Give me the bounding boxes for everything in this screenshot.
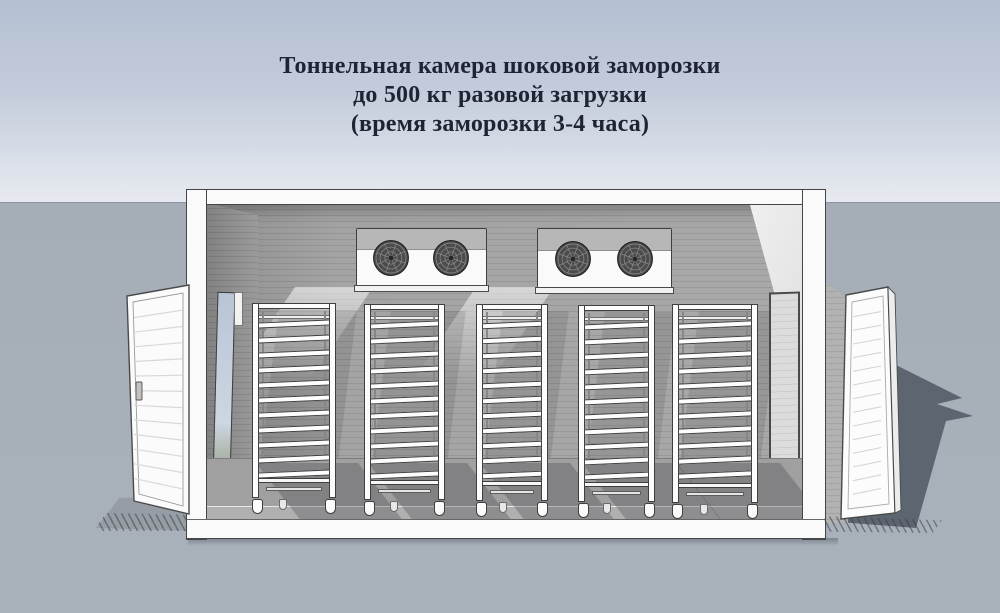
rack-bottom-bar (482, 481, 542, 486)
rack-side-post (751, 304, 758, 503)
caster-wheel-back (603, 503, 611, 514)
tray-shelf (482, 441, 542, 450)
tray-shelf (370, 335, 439, 344)
frame-right-column (802, 189, 826, 540)
rack-bottom-bar (584, 482, 649, 487)
rack-top-back-bar (258, 315, 330, 319)
rack-top-bar (476, 304, 548, 310)
tray-shelf (482, 426, 542, 435)
tray-shelf (678, 455, 752, 464)
tray-shelf (678, 425, 752, 434)
tray-shelf (584, 457, 649, 466)
caster-wheel (644, 503, 655, 518)
frame-top-beam (186, 189, 826, 205)
caster-wheel (537, 502, 548, 517)
tray-shelf (258, 364, 330, 373)
rack-trolley (364, 304, 445, 516)
rack-top-back-bar (678, 316, 752, 320)
rack-axle-bar (592, 491, 641, 495)
tray-shelf (482, 456, 542, 465)
rack-bottom-bar (370, 480, 439, 485)
rack-bottom-bar (258, 478, 330, 483)
rack-trolley (578, 305, 655, 518)
rack-axle-bar (490, 490, 534, 494)
tray-shelf (370, 410, 439, 419)
freezing-chamber-illustration: Тоннельная камера шоковой заморозки до 5… (0, 0, 1000, 613)
tray-shelf (482, 321, 542, 330)
tray-shelf (584, 352, 649, 361)
right-door-graphic (838, 283, 904, 525)
tray-shelf (678, 350, 752, 359)
tray-shelf (584, 427, 649, 436)
tray-shelf (370, 380, 439, 389)
caster-wheel (325, 499, 336, 514)
tray-shelf (584, 322, 649, 331)
tray-shelf (584, 382, 649, 391)
tray-shelf (678, 470, 752, 479)
chamber-base-shadow (188, 538, 838, 546)
tray-shelf (482, 336, 542, 345)
tray-shelf (678, 320, 752, 329)
rack-top-back-bar (370, 316, 439, 320)
rack-side-post (438, 304, 445, 500)
tray-shelf (482, 381, 542, 390)
rack-top-back-bar (482, 316, 542, 320)
caster-wheel (672, 504, 683, 519)
caster-wheel-back (700, 504, 708, 515)
rack-trolley (476, 304, 548, 517)
tray-shelf (482, 411, 542, 420)
tray-shelf (370, 365, 439, 374)
rack-axle-bar (266, 487, 322, 491)
tray-shelf (482, 396, 542, 405)
tray-shelf (678, 395, 752, 404)
caster-wheel (476, 502, 487, 517)
tray-shelf (584, 472, 649, 481)
rack-trolley (672, 304, 758, 519)
tray-shelf (482, 471, 542, 480)
caster-wheel-back (390, 501, 398, 512)
caster-wheel (364, 501, 375, 516)
tray-shelf (370, 425, 439, 434)
tray-shelf (678, 440, 752, 449)
tray-shelf (584, 442, 649, 451)
tray-shelf (370, 350, 439, 359)
tray-shelf (258, 424, 330, 433)
rack-top-bar (578, 305, 655, 311)
tray-shelf (370, 440, 439, 449)
caster-wheel-back (499, 502, 507, 513)
right-door-panel (838, 283, 904, 525)
rack-top-bar (672, 304, 758, 310)
caster-wheel-back (279, 499, 287, 510)
tray-shelf (370, 320, 439, 329)
tray-shelf (482, 366, 542, 375)
tray-shelf (258, 454, 330, 463)
tray-shelf (258, 349, 330, 358)
tray-shelf (678, 380, 752, 389)
tray-shelf (678, 410, 752, 419)
rack-side-post (329, 303, 336, 498)
rack-bottom-bar (678, 483, 752, 488)
tray-shelf (258, 334, 330, 343)
tray-shelf (258, 379, 330, 388)
rack-axle-bar (686, 492, 744, 496)
tray-shelf (258, 394, 330, 403)
tray-shelf (678, 335, 752, 344)
frame-bottom-beam (186, 519, 826, 539)
tray-shelf (584, 412, 649, 421)
rack-side-post (648, 305, 655, 502)
tray-shelf (678, 365, 752, 374)
tray-shelf (584, 397, 649, 406)
rack-trolley (252, 303, 336, 514)
tray-shelf (370, 395, 439, 404)
rack-top-bar (364, 304, 445, 310)
door-handle-icon (136, 382, 142, 400)
caster-wheel (747, 504, 758, 519)
tray-shelf (370, 455, 439, 464)
caster-wheel (252, 499, 263, 514)
tray-shelf (258, 439, 330, 448)
left-door (124, 282, 192, 520)
rack-side-post (541, 304, 548, 501)
tray-shelf (370, 470, 439, 479)
tray-shelf (584, 367, 649, 376)
tray-shelf (482, 351, 542, 360)
tray-shelf (258, 319, 330, 328)
tray-shelf (258, 409, 330, 418)
caster-wheel (578, 503, 589, 518)
left-door-graphic (124, 282, 192, 520)
rack-top-bar (252, 303, 336, 309)
rack-top-back-bar (584, 317, 649, 321)
tray-shelf (584, 337, 649, 346)
caster-wheel (434, 501, 445, 516)
rack-axle-bar (378, 489, 431, 493)
